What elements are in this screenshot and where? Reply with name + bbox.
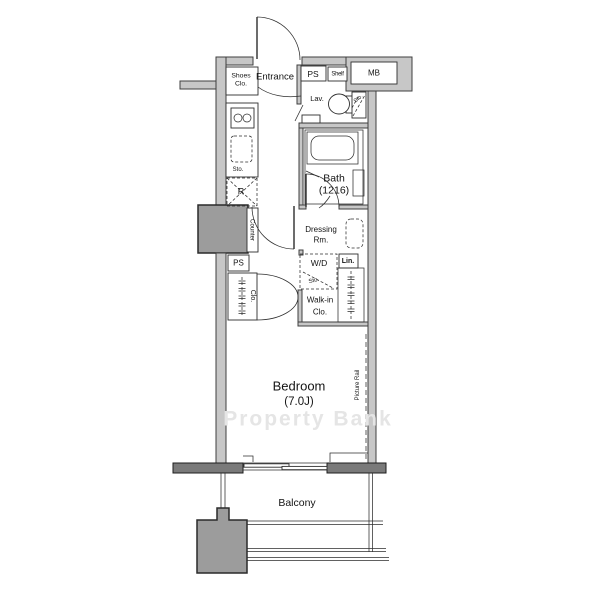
bedroom-label: Bedroom <box>273 379 326 394</box>
watermark-text: Property Bank <box>223 408 393 431</box>
wall-hall-lav <box>297 65 301 104</box>
ps-top-label: PS <box>307 69 319 79</box>
shelf-label: Shelf <box>331 72 344 78</box>
balcony-rail-upper <box>247 521 383 525</box>
wall-bath-bottom-b <box>339 205 368 209</box>
picture-rail-label: Picture Rail <box>355 370 361 401</box>
bath-size-leader <box>319 196 330 208</box>
wall-walkin-left <box>298 290 302 326</box>
pillar-mid <box>198 205 248 253</box>
balcony-divider-right <box>369 473 373 552</box>
balcony-rail-outer <box>247 558 389 561</box>
kitchen-storage-label: Sto. <box>233 167 244 173</box>
bath-label: Bath <box>323 173 345 185</box>
bath-size-label: (1216) <box>319 185 349 197</box>
stove <box>231 108 254 128</box>
dressing-label: Dressing <box>305 225 337 234</box>
bedroom-size-label: (7.0J) <box>284 396 314 408</box>
window-pane <box>282 466 327 469</box>
toilet <box>329 94 350 114</box>
shoes-closet-label2: Clo. <box>235 81 247 88</box>
balcony-label: Balcony <box>278 497 316 509</box>
linen-label: Lin. <box>342 258 354 265</box>
closet-door-arc-bottom <box>257 297 298 320</box>
wd-storage-label: Sto. <box>308 277 320 286</box>
balcony <box>197 473 389 573</box>
dressing-label2: Rm. <box>314 236 329 245</box>
wall-bath-left <box>299 128 303 207</box>
washbasin <box>346 219 363 248</box>
entrance-label: Entrance <box>256 72 294 83</box>
bathtub-outer <box>307 132 358 164</box>
bath-counter <box>353 170 364 196</box>
closet-label: Clo. <box>249 290 256 303</box>
walkin-label2: Clo. <box>313 308 327 317</box>
wall-stub-left <box>180 81 216 89</box>
wall-bottom-right <box>327 463 386 473</box>
wall-left-upper <box>216 57 226 205</box>
bathtub <box>311 136 354 160</box>
closet-door-arc-top <box>257 274 298 297</box>
genkan-step-line <box>258 87 301 97</box>
floor-step-right <box>330 453 368 462</box>
walkin-closet <box>338 268 364 322</box>
mb-label: MB <box>368 69 380 78</box>
refrigerator-label: R <box>238 187 245 197</box>
wall-bath-bottom-a <box>299 205 306 209</box>
balcony-divider-left <box>221 473 225 509</box>
wall-top-mid <box>302 57 346 65</box>
pillar-balcony <box>197 508 247 573</box>
wall-left-lower <box>216 253 226 463</box>
wd-label: W/D <box>311 258 328 268</box>
wall-bottom-left <box>173 463 243 473</box>
wall-lav-bath <box>299 123 368 128</box>
ps-shaft-label: PS <box>233 259 244 268</box>
wall-walkin-bottom <box>298 322 368 326</box>
counter-label: Counter <box>249 219 256 241</box>
lav-label: Lav. <box>310 94 324 103</box>
shoes-closet-label: Shoes <box>231 73 251 80</box>
threshold-box <box>302 115 320 123</box>
walkin-label: Walk-in <box>307 296 333 305</box>
dressing-room <box>252 206 363 289</box>
entrance-door-arc <box>257 17 300 60</box>
balcony-rail-lower <box>247 549 386 552</box>
floor-plan: Property Bank Entrance Shoes Clo. PS She… <box>0 0 600 599</box>
floor-step-left <box>243 456 253 462</box>
